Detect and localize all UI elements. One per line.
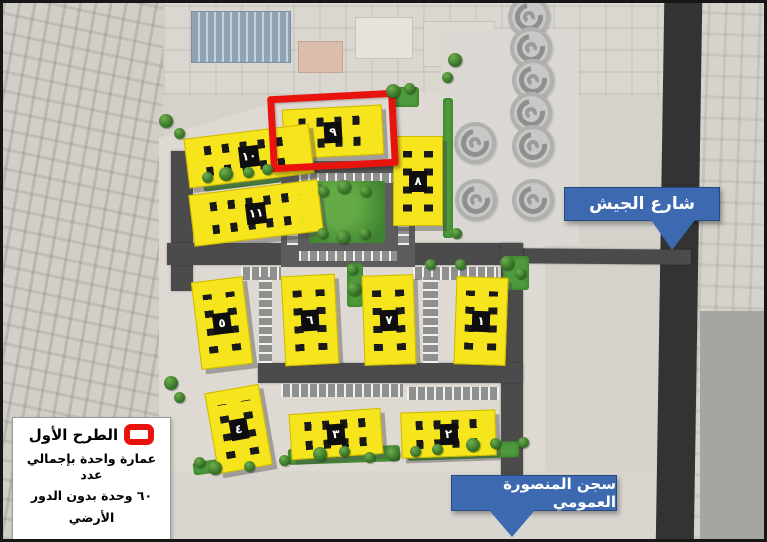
- tree-icon: [174, 392, 185, 403]
- tree-icon: [518, 437, 529, 448]
- legend-line-3: الأرضي: [69, 510, 115, 526]
- parking-stripes: [299, 251, 397, 261]
- parking-stripes: [259, 277, 272, 363]
- tree-icon: [466, 438, 480, 452]
- building-number: ٢: [439, 423, 458, 445]
- building-number: ١٠: [237, 144, 260, 167]
- tree-icon: [336, 230, 350, 244]
- internal-road-lower: [258, 363, 523, 383]
- tree-icon: [404, 83, 415, 94]
- legend-line-2: ٦٠ وحدة بدون الدور: [31, 488, 152, 504]
- building-number: ١: [472, 310, 491, 332]
- tree-icon: [364, 452, 375, 463]
- satellite-building: [355, 17, 413, 59]
- tree-icon: [164, 376, 178, 390]
- building-5: ٥: [191, 276, 253, 370]
- legend-title: الطرح الأول: [29, 426, 118, 444]
- building-number: ٧: [380, 309, 399, 331]
- building-number: ٣: [326, 423, 345, 445]
- building-number: ١١: [244, 201, 267, 224]
- tree-icon: [359, 228, 370, 239]
- treatment-tank: [455, 179, 497, 221]
- building-7: ٧: [361, 274, 416, 366]
- satellite-solar-roof: [191, 11, 291, 63]
- building-number: ٦: [300, 309, 319, 331]
- treatment-tank: [512, 125, 554, 167]
- tree-icon: [490, 438, 501, 449]
- tree-icon: [208, 461, 222, 475]
- tree-icon: [202, 172, 213, 183]
- treatment-tank: [512, 179, 554, 221]
- prison-label-text: سجن المنصورة العمومي: [452, 475, 616, 511]
- legend-box: الطرح الأول عمارة واحدة بإجمالي عدد ٦٠ و…: [12, 417, 171, 541]
- legend-line-1: عمارة واحدة بإجمالي عدد: [17, 451, 166, 482]
- tree-icon: [432, 444, 443, 455]
- prison-label-callout: سجن المنصورة العمومي: [451, 475, 617, 511]
- tree-icon: [347, 264, 358, 275]
- tree-icon: [174, 128, 185, 139]
- tree-icon: [159, 114, 173, 128]
- tree-icon: [448, 53, 462, 67]
- site-plan-map: ١ ٢ ٣ ٤ ٥ ٦ ٧ ٨ ٩ ١٠ ١١ شارع الجيش سجن ا…: [0, 0, 767, 542]
- tree-icon: [318, 186, 329, 197]
- building-8: ٨: [393, 136, 443, 226]
- satellite-shadow-area: [700, 311, 767, 542]
- tree-icon: [500, 256, 514, 270]
- tree-icon: [451, 228, 462, 239]
- satellite-building: [298, 41, 343, 73]
- access-road: [513, 248, 691, 265]
- tree-icon: [425, 259, 436, 270]
- street-label-text: شارع الجيش: [589, 194, 695, 214]
- tree-icon: [442, 72, 453, 83]
- building-1: ١: [453, 276, 508, 366]
- treatment-tank: [454, 122, 496, 164]
- parking-stripes: [281, 384, 403, 397]
- tree-icon: [347, 282, 361, 296]
- green-strip: [443, 98, 453, 238]
- tree-icon: [317, 228, 328, 239]
- red-rectangle-outline-icon: [124, 424, 154, 445]
- tree-icon: [339, 446, 350, 457]
- building-number: ٤: [228, 417, 249, 441]
- tree-icon: [219, 167, 233, 181]
- tree-icon: [455, 259, 466, 270]
- tree-icon: [410, 446, 421, 457]
- building-6: ٦: [281, 274, 340, 367]
- tree-icon: [386, 84, 400, 98]
- tree-icon: [262, 164, 273, 175]
- highlight-rectangle-icon: [267, 90, 399, 173]
- tree-icon: [194, 457, 205, 468]
- tree-icon: [313, 447, 327, 461]
- legend-title-row: الطرح الأول: [29, 424, 154, 445]
- tree-icon: [337, 180, 351, 194]
- building-number: ٥: [212, 311, 232, 334]
- tree-icon: [515, 268, 526, 279]
- tree-icon: [244, 461, 255, 472]
- tree-icon: [279, 455, 290, 466]
- tree-icon: [243, 167, 254, 178]
- parking-stripes: [407, 387, 499, 400]
- street-label-callout: شارع الجيش: [564, 187, 720, 221]
- parking-stripes: [423, 277, 438, 363]
- building-number: ٨: [409, 171, 427, 192]
- tree-icon: [360, 186, 371, 197]
- tree-icon: [386, 447, 400, 461]
